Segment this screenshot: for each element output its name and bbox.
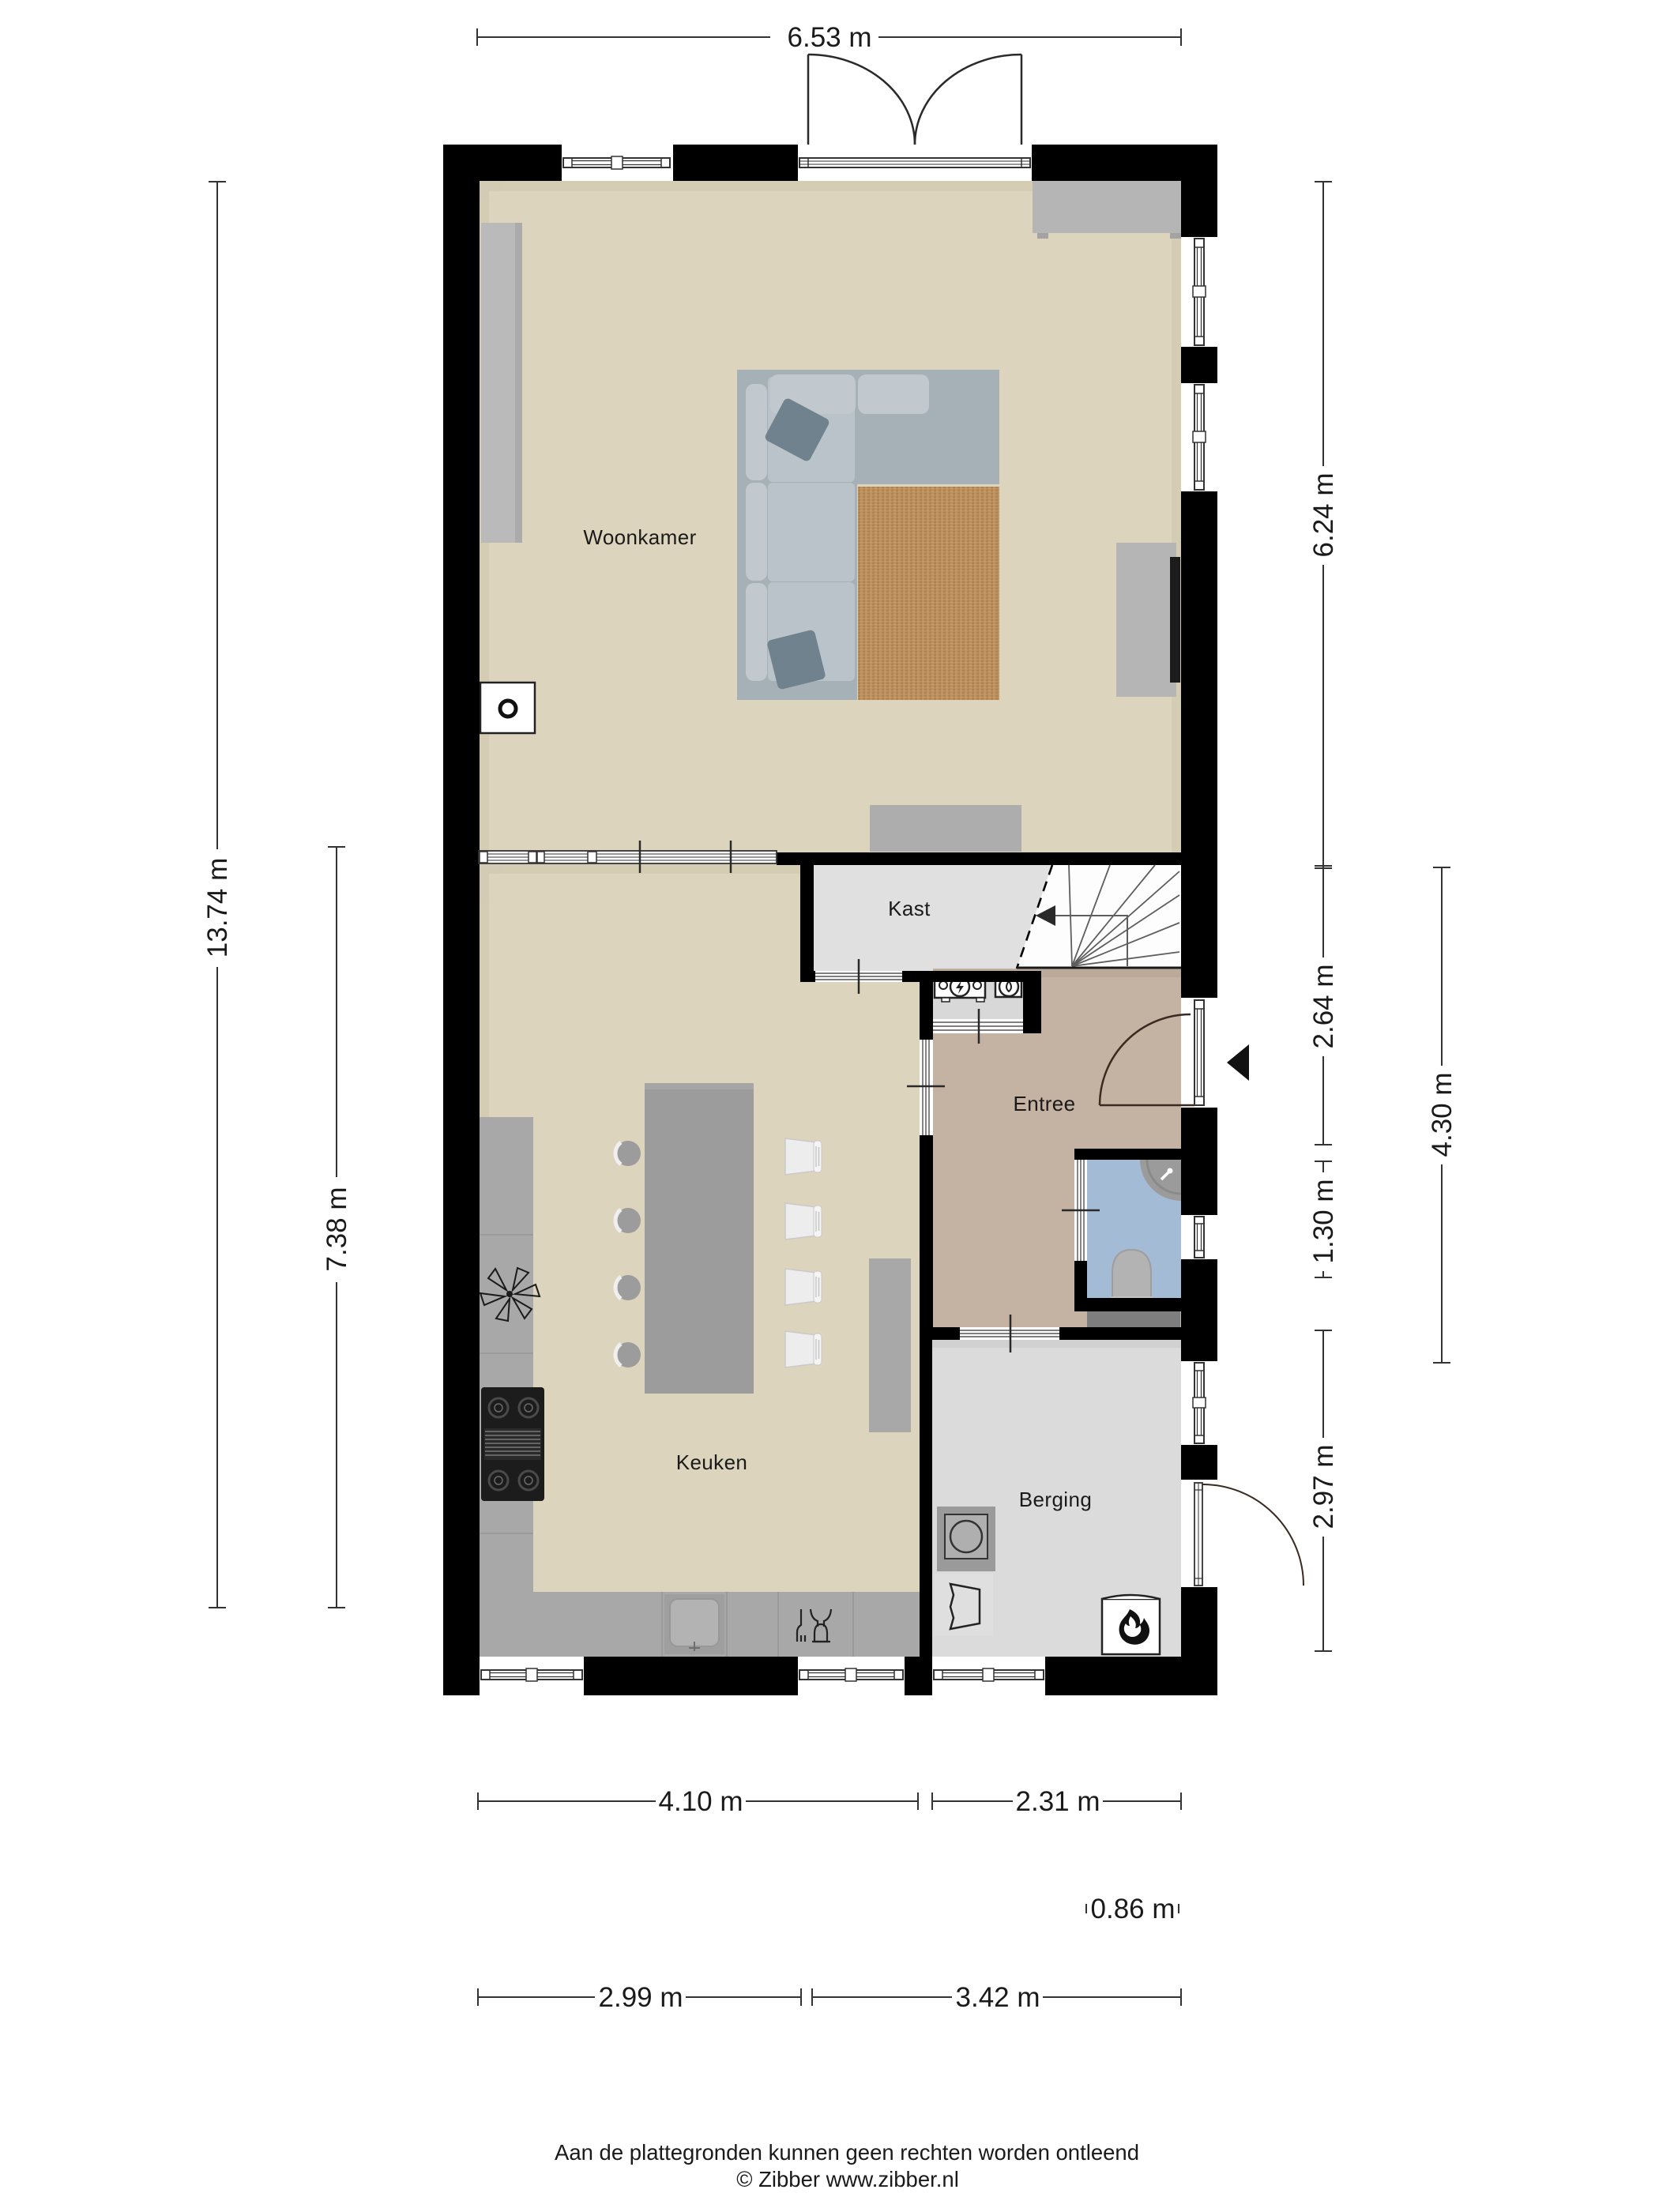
svg-text:Woonkamer: Woonkamer xyxy=(583,525,696,549)
svg-text:4.10 m: 4.10 m xyxy=(659,1786,743,1817)
svg-text:4.30 m: 4.30 m xyxy=(1427,1073,1458,1157)
svg-text:6.24 m: 6.24 m xyxy=(1308,473,1339,558)
svg-text:2.31 m: 2.31 m xyxy=(1016,1786,1100,1817)
svg-text:2.97 m: 2.97 m xyxy=(1308,1445,1339,1529)
svg-text:6.53 m: 6.53 m xyxy=(788,22,872,53)
svg-text:© Zibber www.zibber.nl: © Zibber www.zibber.nl xyxy=(736,2167,959,2191)
svg-text:3.42 m: 3.42 m xyxy=(956,1982,1040,2013)
svg-text:Berging: Berging xyxy=(1019,1488,1092,1511)
svg-text:2.99 m: 2.99 m xyxy=(599,1982,683,2013)
svg-text:Keuken: Keuken xyxy=(676,1450,748,1474)
svg-text:7.38 m: 7.38 m xyxy=(322,1187,352,1272)
svg-text:Aan de plattegronden kunnen ge: Aan de plattegronden kunnen geen rechten… xyxy=(555,2140,1139,2165)
svg-text:13.74 m: 13.74 m xyxy=(202,858,233,957)
svg-text:Kast: Kast xyxy=(888,897,931,920)
svg-text:1.30 m: 1.30 m xyxy=(1308,1179,1339,1264)
svg-text:2.64 m: 2.64 m xyxy=(1308,965,1339,1049)
svg-text:Entree: Entree xyxy=(1013,1092,1075,1115)
svg-text:0.86 m: 0.86 m xyxy=(1091,1894,1176,1924)
